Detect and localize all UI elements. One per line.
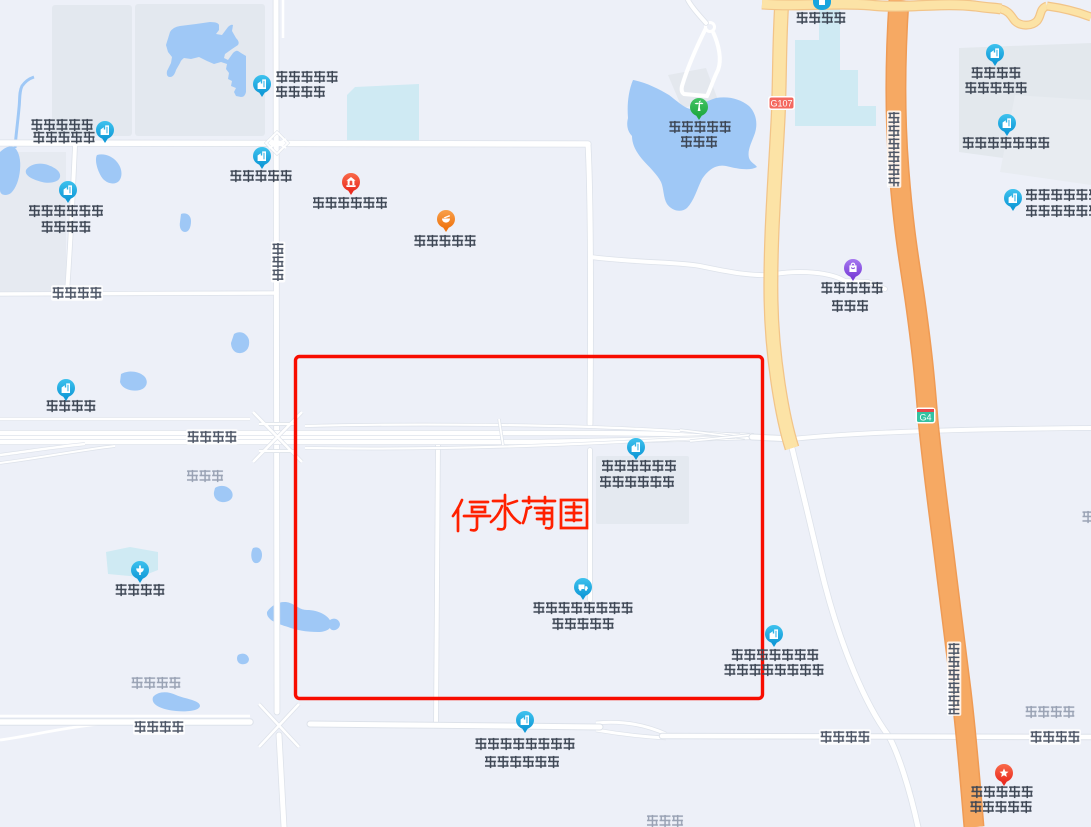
- svg-text:G4: G4: [919, 413, 931, 423]
- svg-text:G107: G107: [770, 99, 792, 109]
